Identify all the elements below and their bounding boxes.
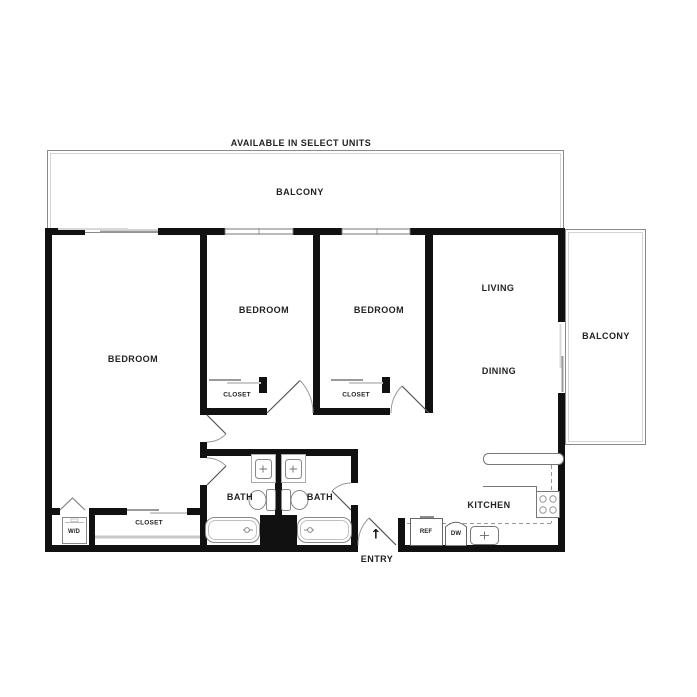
wall-segment — [45, 508, 60, 515]
wall-segment — [313, 235, 320, 415]
label-bath-2: BATH — [307, 492, 333, 502]
stove — [537, 492, 560, 518]
door-arc — [332, 483, 351, 491]
entry-door-arc — [358, 518, 369, 545]
label-dishwasher: DW — [451, 531, 461, 537]
label-living: LIVING — [482, 283, 515, 293]
entry-arrow-icon: ↑ — [371, 528, 382, 543]
window — [342, 229, 410, 234]
kitchen-wall-stub — [398, 518, 405, 552]
wall-segment — [45, 228, 52, 552]
label-closet-bedroom-2: CLOSET — [223, 392, 251, 399]
door-panel — [207, 466, 226, 485]
closet2-bottom-wall — [200, 408, 267, 415]
bar-counter — [484, 454, 564, 465]
laundry-divider-wall — [89, 508, 95, 552]
door-arc — [391, 386, 402, 413]
wall-segment — [558, 393, 565, 552]
wall-segment — [558, 228, 565, 322]
label-kitchen: KITCHEN — [467, 500, 510, 510]
closet3-bottom-wall — [320, 408, 390, 415]
label-bedroom-2: BEDROOM — [239, 305, 289, 315]
counter-overhead-dashed — [405, 465, 552, 524]
wall-segment — [200, 235, 207, 413]
door-panel — [267, 381, 300, 414]
door-arc — [300, 381, 313, 414]
label-closet-hall: CLOSET — [135, 520, 163, 527]
floor-plan: AVAILABLE IN SELECT UNITS BALCONY BALCON… — [0, 0, 697, 697]
label-balcony-top: BALCONY — [276, 187, 324, 197]
wall-segment — [351, 505, 358, 552]
door-arc — [207, 434, 226, 442]
wall-segment — [187, 508, 207, 515]
bath-top-wall — [200, 449, 358, 456]
closet2-stub — [259, 377, 267, 393]
wall-segment — [293, 228, 342, 235]
sliding-doors — [58, 229, 563, 537]
label-refrigerator: REF — [420, 529, 432, 535]
wall-segment — [158, 228, 225, 235]
label-laundry: W/D — [68, 529, 80, 535]
tub-drain-cap — [245, 528, 250, 533]
label-dining: DINING — [482, 366, 516, 376]
closet3-stub — [382, 377, 390, 393]
toilet-bowl — [291, 491, 308, 510]
label-bedroom-3: BEDROOM — [354, 305, 404, 315]
bifold-door — [60, 498, 85, 510]
floor-plan-drawing — [0, 0, 697, 697]
label-bath-1: BATH — [227, 492, 253, 502]
wall-segment — [398, 545, 565, 552]
wall-segment — [351, 456, 358, 483]
label-balcony-right: BALCONY — [582, 331, 630, 341]
toilet-tank — [267, 490, 276, 511]
door-panel — [332, 491, 351, 510]
door-panel — [207, 415, 226, 434]
toilet-tank — [282, 490, 291, 511]
wall-segment — [425, 235, 433, 413]
wall-segment — [410, 228, 565, 235]
tub-drain-cap — [308, 528, 313, 533]
banner-available-units: AVAILABLE IN SELECT UNITS — [231, 138, 371, 148]
bath-divider-wall — [275, 456, 282, 516]
label-closet-bedroom-3: CLOSET — [342, 392, 370, 399]
label-entry: ENTRY — [361, 554, 393, 564]
door-panel — [402, 386, 429, 413]
label-bedroom-master: BEDROOM — [108, 354, 158, 364]
plumbing-chase — [260, 515, 297, 548]
door-arc — [207, 458, 226, 466]
